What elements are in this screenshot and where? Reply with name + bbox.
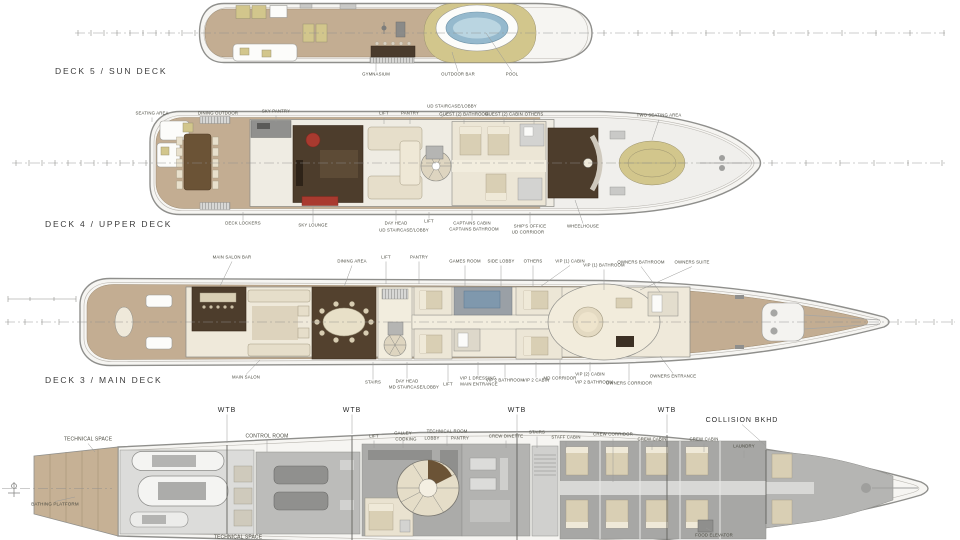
room-label: PANTRY — [401, 112, 419, 117]
room-label: LAUNDRY — [733, 445, 755, 450]
room-label: GUEST (2) BATHROOM — [439, 113, 489, 118]
salon-rug — [252, 306, 298, 340]
bulkhead-label: WTB — [218, 407, 237, 415]
room-label: GAMES ROOM — [449, 260, 481, 265]
room-label: MAIN SALON — [232, 376, 260, 381]
room-label: MD CORRIDOR — [544, 377, 577, 382]
room-label: LIFT — [369, 435, 378, 440]
room-label: TECHNICAL ROOM — [427, 430, 468, 435]
room-label: DECK LOCKERS — [225, 222, 260, 227]
room-label: PANTRY — [451, 437, 469, 442]
anchor-icon — [8, 482, 20, 497]
room-label: SIDE LOBBY — [487, 260, 514, 265]
room-label: TWO SEATING AREA — [637, 114, 682, 119]
bulkhead-label: WTB — [508, 407, 527, 415]
room-label: OWNERS CORRIDOR — [606, 382, 652, 387]
room-label: DAY HEAD — [385, 222, 408, 227]
room-label: TECHNICAL SPACE — [64, 437, 112, 443]
room-label: OWNERS ENTRANCE — [650, 375, 696, 380]
room-label: LIFT — [379, 112, 388, 117]
room-label: OWNERS SUITE — [675, 261, 710, 266]
lift — [426, 146, 443, 159]
room-label: WHEELHOUSE — [567, 225, 599, 230]
room-label: STAFF CABIN — [551, 436, 580, 441]
room-label: MAIN SALON BAR — [213, 256, 252, 261]
room-label: CAPTAINS BATHROOM — [449, 228, 498, 233]
room-label: POOL — [506, 73, 519, 78]
room-label: VIP (1) CABIN — [555, 260, 585, 265]
deck3-title: DECK 3 / MAIN DECK — [45, 375, 162, 385]
room-label: CONTROL ROOM — [245, 434, 288, 440]
bulkhead-label: WTB — [343, 407, 362, 415]
room-label: VIP 2 BATHROOM — [486, 379, 524, 384]
room-label: DAY HEAD — [396, 380, 419, 385]
room-label: OTHERS — [525, 113, 544, 118]
room-label: STAIRS — [529, 431, 545, 436]
room-label: LIFT — [381, 256, 390, 261]
room-label: TECHNICAL SPACE — [214, 535, 262, 540]
bulkhead-label: WTB — [658, 407, 677, 415]
room-label: LIFT — [443, 383, 452, 388]
outdoor-dining-table — [184, 134, 211, 190]
room-label: SKY PANTRY — [262, 110, 290, 115]
stairs — [370, 58, 414, 64]
room-label: DINING OUTDOOR — [198, 112, 238, 117]
room-label: OUTDOOR BAR — [441, 73, 475, 78]
deck-plans-drawing — [0, 0, 960, 540]
room-label: LOBBY — [424, 437, 439, 442]
room-label: CREW CORRIDOR — [593, 433, 633, 438]
room-label: UD STAIRCASE/LOBBY — [427, 105, 477, 110]
room-label: CREW CABIN — [638, 438, 667, 443]
room-label: GUEST (2) CABIN — [485, 113, 523, 118]
room-label: OTHERS — [524, 260, 543, 265]
room-label: SKY LOUNGE — [298, 224, 327, 229]
room-label: OWNERS BATHROOM — [617, 261, 664, 266]
room-label: CREW DINETTE — [489, 435, 524, 440]
room-label: UD STAIRCASE/LOBBY — [379, 229, 429, 234]
room-label: CREW CABIN — [690, 438, 719, 443]
room-label: DINING AREA — [337, 260, 366, 265]
room-label: UD CORRIDOR — [512, 231, 544, 236]
outdoor-bar-counter — [371, 46, 415, 57]
deck5-title: DECK 5 / SUN DECK — [55, 66, 167, 76]
yacht-deck-plans: DECK 5 / SUN DECK DECK 4 / UPPER DECK DE… — [0, 0, 960, 540]
room-label: GYMNASIUM — [362, 73, 390, 78]
room-label: COOKING — [395, 438, 416, 443]
room-label: PANTRY — [410, 256, 428, 261]
room-label: MD STAIRCASE/LOBBY — [389, 386, 439, 391]
food-elevator — [698, 520, 713, 532]
room-label: CAPTAINS CABIN — [453, 222, 491, 227]
room-label: LIFT — [424, 220, 433, 225]
bathing-platform — [34, 447, 118, 536]
room-label: VIP (2) CABIN — [575, 373, 605, 378]
room-label: SEATING AREA — [135, 112, 168, 117]
bulkhead-label: COLLISION BKHD — [706, 417, 779, 425]
room-label: STAIRS — [365, 381, 381, 386]
room-label: BATHING PLATFORM — [31, 503, 79, 508]
lift — [388, 322, 403, 335]
room-label: FOOD ELEVATOR — [695, 534, 733, 539]
lower-deck-plan — [8, 432, 928, 540]
deck4-title: DECK 4 / UPPER DECK — [45, 219, 172, 229]
room-label: GALLEY — [394, 432, 412, 437]
room-label: SHIP'S OFFICE — [514, 225, 547, 230]
